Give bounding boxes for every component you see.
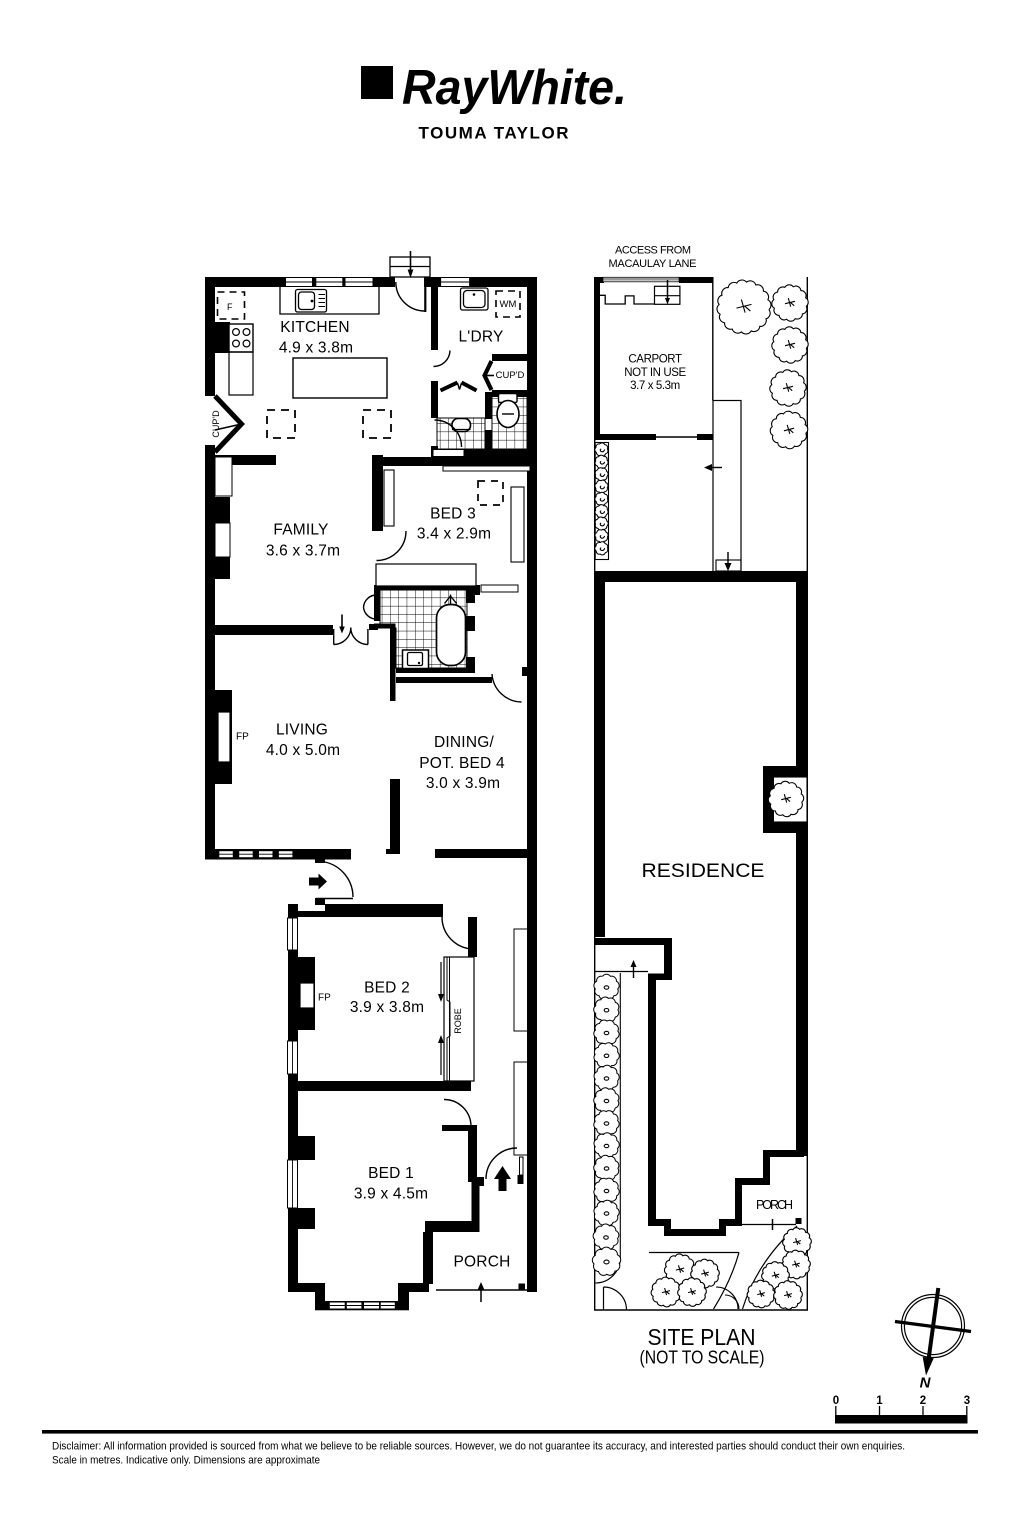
svg-text:FP: FP [318,993,331,1004]
svg-text:CUP'D: CUP'D [211,410,221,438]
svg-text:FP: FP [236,732,249,743]
svg-text:(NOT TO SCALE): (NOT TO SCALE) [640,1348,765,1368]
svg-text:4.9 x 3.8m: 4.9 x 3.8m [279,340,353,357]
svg-text:2: 2 [920,1395,926,1407]
svg-text:MACAULAY LANE: MACAULAY LANE [609,258,697,270]
svg-text:DINING/: DINING/ [434,734,494,751]
svg-text:TOUMA TAYLOR: TOUMA TAYLOR [419,124,569,143]
svg-text:L'DRY: L'DRY [458,329,503,346]
svg-text:3.9 x 3.8m: 3.9 x 3.8m [350,999,424,1016]
svg-text:ACCESS FROM: ACCESS FROM [615,245,691,257]
svg-text:POT. BED 4: POT. BED 4 [419,755,505,772]
svg-text:LIVING: LIVING [276,722,328,739]
svg-text:RESIDENCE: RESIDENCE [642,860,765,882]
svg-text:0: 0 [833,1395,839,1407]
svg-text:1: 1 [876,1395,883,1407]
svg-text:3.9 x 4.5m: 3.9 x 4.5m [354,1186,428,1203]
svg-text:3.7 x 5.3m: 3.7 x 5.3m [630,380,680,392]
svg-text:BED 2: BED 2 [364,980,410,997]
svg-text:PORCH: PORCH [454,1254,511,1271]
svg-text:ROBE: ROBE [453,1008,463,1034]
svg-text:KITCHEN: KITCHEN [280,319,349,336]
svg-text:NOT IN USE: NOT IN USE [624,367,686,379]
svg-text:CUP'D: CUP'D [496,370,525,381]
svg-text:Disclaimer: All information pr: Disclaimer: All information provided is … [52,1441,905,1453]
svg-text:BED 1: BED 1 [368,1165,414,1182]
svg-text:RayWhite.: RayWhite. [402,61,627,115]
svg-text:3.0 x 3.9m: 3.0 x 3.9m [426,775,500,792]
svg-text:N: N [920,1375,932,1392]
svg-text:CARPORT: CARPORT [628,354,682,366]
svg-text:FAMILY: FAMILY [273,522,328,539]
svg-text:3: 3 [964,1395,970,1407]
svg-text:PORCH: PORCH [756,1198,793,1212]
svg-text:3.4 x 2.9m: 3.4 x 2.9m [417,526,491,543]
svg-text:F: F [227,302,233,312]
svg-text:4.0 x 5.0m: 4.0 x 5.0m [266,742,340,759]
svg-text:WM: WM [500,299,517,310]
svg-text:3.6 x 3.7m: 3.6 x 3.7m [266,543,340,560]
svg-text:SITE PLAN: SITE PLAN [648,1324,756,1350]
svg-text:BED 3: BED 3 [430,506,476,523]
svg-text:Scale in metres. Indicative on: Scale in metres. Indicative only. Dimens… [52,1455,320,1467]
